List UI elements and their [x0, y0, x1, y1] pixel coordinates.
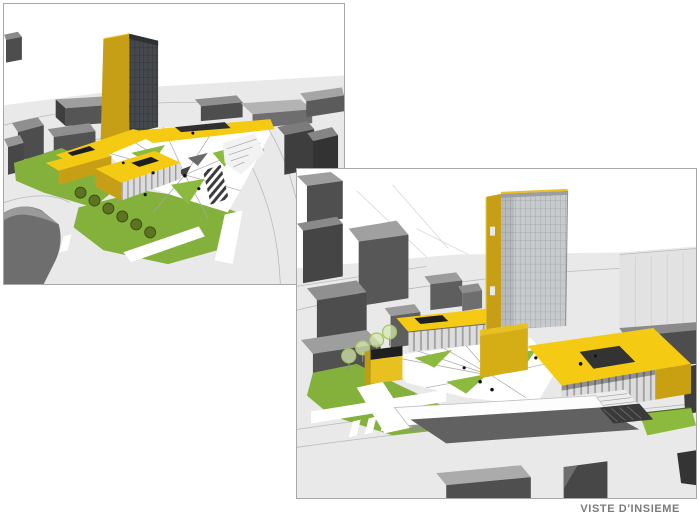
render-view-2 [296, 168, 697, 499]
kiosk-block [365, 346, 403, 386]
tower-glass-face [129, 34, 158, 134]
tower [486, 189, 568, 338]
render-view-1-graphic [4, 4, 344, 284]
tower-podium [480, 323, 528, 378]
render-view-1 [3, 3, 345, 285]
page-caption: VISTE D'INSIEME [560, 503, 680, 515]
render-view-2-graphic [297, 169, 696, 498]
tower-yellow-side [486, 194, 501, 338]
tower-yellow-face [100, 34, 129, 149]
presentation-page: VISTE D'INSIEME [0, 0, 700, 525]
